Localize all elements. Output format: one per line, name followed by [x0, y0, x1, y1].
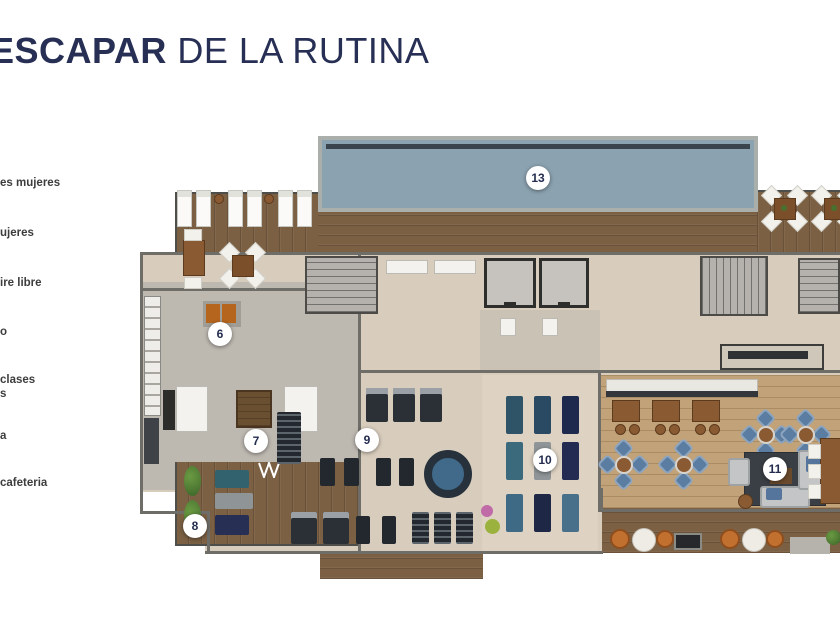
deck-bottom-small — [320, 553, 483, 579]
staircase — [700, 256, 768, 316]
wall — [140, 252, 143, 514]
deck-chair — [184, 277, 202, 289]
gym-machine — [291, 512, 317, 544]
dumbbell-rack — [412, 512, 429, 544]
sauna — [236, 390, 272, 428]
pool-edge — [326, 144, 750, 149]
sink-counter — [386, 260, 428, 274]
exercise-ball — [481, 505, 493, 517]
yoga-mat — [215, 515, 249, 535]
yoga-mat — [215, 493, 253, 509]
yoga-mat — [534, 396, 551, 434]
bathroom-floor — [480, 310, 600, 372]
dumbbell-rack — [456, 512, 473, 544]
bar-table — [612, 400, 640, 422]
armchair — [728, 458, 750, 486]
elevator — [539, 258, 589, 308]
yoga-mat — [562, 396, 579, 434]
sun-lounger — [247, 190, 262, 227]
gym-machine — [382, 516, 396, 544]
sun-lounger — [196, 190, 211, 227]
yoga-mat — [506, 396, 523, 434]
cabinet — [163, 390, 175, 430]
side-table — [632, 528, 656, 552]
bar-table — [652, 400, 680, 422]
treadmill — [420, 388, 442, 422]
sun-lounger — [177, 190, 192, 227]
jacuzzi — [424, 450, 472, 498]
weight-bench — [344, 458, 359, 486]
amenity-marker-11: 11 — [763, 457, 787, 481]
cafe-table — [601, 442, 647, 488]
dining-chair — [808, 444, 821, 459]
bar-stool — [655, 424, 666, 435]
treadmill — [366, 388, 388, 422]
steam-symbol — [258, 462, 280, 478]
yoga-mat — [506, 494, 523, 532]
yoga-mat — [562, 494, 579, 532]
lounge-chair — [656, 530, 674, 548]
weight-bench — [376, 458, 391, 486]
fire-pit — [674, 533, 702, 550]
bar-front — [606, 391, 758, 397]
lounge-chair — [610, 529, 630, 549]
sink-counter — [176, 386, 208, 432]
sun-lounger — [278, 190, 293, 227]
dining-set — [762, 186, 806, 230]
elevator — [484, 258, 536, 308]
dumbbell-rack — [434, 512, 451, 544]
staircase — [798, 258, 840, 314]
yoga-mat — [215, 470, 249, 488]
amenity-marker-13: 13 — [526, 166, 550, 190]
bar-stool — [709, 424, 720, 435]
deck-table — [183, 240, 205, 276]
floor-plan: 1367891011 — [0, 0, 840, 630]
lounge-chair — [720, 529, 740, 549]
sofa-cushion — [766, 488, 782, 500]
dining-chair — [808, 464, 821, 479]
sun-lounger — [228, 190, 243, 227]
bench-cushion — [206, 304, 220, 323]
bar-stool — [695, 424, 706, 435]
sink-counter — [434, 260, 476, 274]
wall — [358, 370, 840, 373]
yoga-mat — [562, 442, 579, 480]
toilet — [542, 318, 558, 336]
treadmill — [393, 388, 415, 422]
staircase — [305, 256, 378, 314]
side-table — [738, 494, 753, 509]
plant — [826, 530, 840, 545]
plant — [184, 466, 201, 496]
dining-set — [812, 186, 840, 230]
kitchen-counter — [728, 351, 808, 359]
exercise-ball — [485, 519, 500, 534]
side-table — [264, 194, 274, 204]
bar-stool — [629, 424, 640, 435]
yoga-mat — [506, 442, 523, 480]
dining-table — [820, 438, 840, 504]
bench-cushion — [222, 304, 236, 323]
bar-stool — [615, 424, 626, 435]
deck-chair — [184, 229, 202, 241]
amenity-marker-10: 10 — [533, 448, 557, 472]
page: ESCAPAR DE LA RUTINA es mujeresujeresire… — [0, 0, 840, 630]
weight-bench — [399, 458, 414, 486]
bar-table — [692, 400, 720, 422]
side-table — [214, 194, 224, 204]
wall — [600, 509, 840, 512]
doormat — [790, 537, 830, 554]
amenity-marker-9: 9 — [355, 428, 379, 452]
gym-machine — [356, 516, 370, 544]
cafe-table — [661, 442, 707, 488]
lockers — [144, 296, 161, 416]
gym-machine — [323, 512, 349, 544]
dumbbell-rack — [277, 412, 301, 464]
dining-chair — [808, 484, 821, 499]
yoga-mat — [534, 494, 551, 532]
sun-lounger — [297, 190, 312, 227]
lounge-chair — [766, 530, 784, 548]
amenity-marker-6: 6 — [208, 322, 232, 346]
side-table — [742, 528, 766, 552]
dining-set — [220, 243, 264, 287]
wall — [207, 511, 210, 554]
shower — [144, 418, 159, 464]
wall — [205, 551, 603, 554]
toilet — [500, 318, 516, 336]
weight-bench — [320, 458, 335, 486]
amenity-marker-8: 8 — [183, 514, 207, 538]
bar-stool — [669, 424, 680, 435]
amenity-marker-7: 7 — [244, 429, 268, 453]
